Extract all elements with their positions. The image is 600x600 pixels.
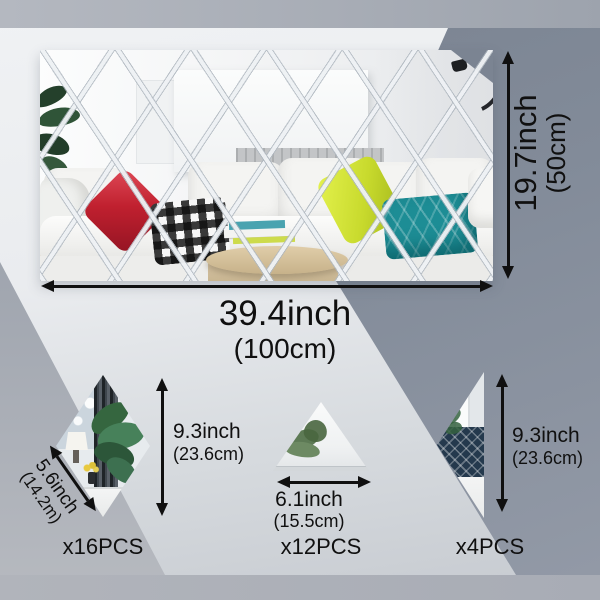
triangle-width-cm: (15.5cm) [250,512,368,531]
bottom-gray-strip [0,575,600,600]
triangle-width-dimension-arrow [290,481,358,484]
half-diamond-height-label: 9.3inch (23.6cm) [512,425,583,468]
main-mirror-photo [40,50,493,281]
diamond-height-cm: (23.6cm) [173,445,244,464]
triangle-count-label: x12PCS [276,535,366,558]
product-dimension-diagram: 39.4inch (100cm) 19.7inch (50cm) 5.6inch… [0,0,600,600]
diamond-tile-lattice [40,50,493,281]
diamond-height-dimension-arrow [161,391,164,503]
triangle-width-label: 6.1inch (15.5cm) [250,489,368,531]
width-dimension-arrow [54,285,480,288]
diamond-height-label: 9.3inch (23.6cm) [173,421,244,464]
main-height-inches: 19.7inch [510,94,543,211]
top-gray-strip [0,0,600,28]
diamond-height-inches: 9.3inch [173,421,244,443]
table-lamp-body [73,450,80,463]
half-diamond-height-cm: (23.6cm) [512,449,583,468]
main-width-label: 39.4inch (100cm) [140,296,430,363]
main-width-cm: (100cm) [140,334,430,363]
diamond-count-label: x16PCS [58,535,148,558]
main-height-label: 19.7inch (50cm) [495,68,585,238]
table-lamp-shade [65,432,88,450]
triangle-reflection-shelf [273,466,369,471]
triangle-width-inches: 6.1inch [250,489,368,511]
vase [88,472,96,485]
half-diamond-height-dimension-arrow [501,387,504,499]
half-diamond-count-label: x4PCS [447,535,533,558]
main-height-cm: (50cm) [543,113,570,194]
main-width-inches: 39.4inch [140,296,430,333]
half-diamond-height-inches: 9.3inch [512,425,583,447]
